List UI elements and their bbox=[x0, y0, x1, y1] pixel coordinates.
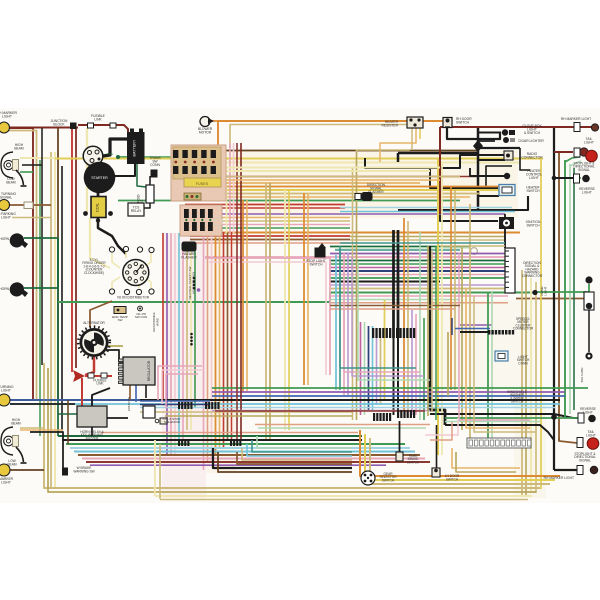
svg-text:LIGHT: LIGHT bbox=[586, 433, 596, 437]
svg-text:BEAM: BEAM bbox=[11, 421, 21, 425]
svg-text:BATTERY: BATTERY bbox=[133, 139, 137, 156]
svg-text:SWITCH: SWITCH bbox=[407, 460, 420, 464]
svg-text:LIGHT: LIGHT bbox=[529, 176, 539, 180]
svg-text:RELAY: RELAY bbox=[131, 209, 142, 213]
svg-text:CONN: CONN bbox=[150, 163, 160, 167]
svg-text:LIGHT: LIGHT bbox=[1, 480, 11, 484]
svg-text:& SWITCH: & SWITCH bbox=[524, 131, 541, 135]
svg-text:SOLENOID: SOLENOID bbox=[164, 420, 181, 424]
svg-text:CONNECTOR: CONNECTOR bbox=[513, 327, 534, 331]
svg-text:CLOCKWISE): CLOCKWISE) bbox=[84, 271, 104, 275]
svg-text:MOTOR: MOTOR bbox=[199, 130, 212, 134]
svg-text:SWITCH: SWITCH bbox=[309, 262, 323, 266]
svg-text:RH MARKER LIGHT: RH MARKER LIGHT bbox=[561, 117, 591, 121]
svg-text:SIGNAL: SIGNAL bbox=[0, 195, 12, 199]
svg-text:LIGHT: LIGHT bbox=[582, 190, 592, 194]
svg-text:HORN: HORN bbox=[0, 287, 10, 291]
svg-text:LIGHT: LIGHT bbox=[2, 115, 12, 119]
svg-text:ALTERNATOR: ALTERNATOR bbox=[83, 321, 105, 325]
svg-text:FLASHER: FLASHER bbox=[181, 255, 197, 259]
svg-text:LINK: LINK bbox=[96, 382, 104, 386]
svg-text:HORN: HORN bbox=[0, 237, 10, 241]
svg-text:BEAM: BEAM bbox=[14, 147, 24, 151]
svg-text:SWITCH: SWITCH bbox=[382, 478, 395, 482]
svg-text:(AUTO TRANS): (AUTO TRANS) bbox=[192, 272, 196, 294]
svg-text:CONN: CONN bbox=[518, 361, 528, 365]
svg-text:SWITCH: SWITCH bbox=[446, 477, 459, 481]
svg-text:SW: SW bbox=[118, 318, 123, 322]
svg-text:BUZZER: BUZZER bbox=[86, 436, 99, 440]
svg-text:RH MARKER LIGHT: RH MARKER LIGHT bbox=[544, 476, 574, 480]
svg-text:SWITCH: SWITCH bbox=[456, 120, 470, 124]
svg-text:SW CON: SW CON bbox=[135, 315, 147, 319]
svg-text:BLOCK: BLOCK bbox=[53, 122, 65, 126]
svg-text:V8 ON DISTRIBUTOR: V8 ON DISTRIBUTOR bbox=[117, 296, 150, 300]
svg-text:SWITCH: SWITCH bbox=[526, 189, 540, 193]
svg-text:SIGNAL: SIGNAL bbox=[579, 458, 591, 462]
svg-text:GRN: GRN bbox=[107, 152, 113, 156]
svg-text:LIGHT: LIGHT bbox=[583, 410, 593, 414]
svg-text:WARNING SW: WARNING SW bbox=[73, 469, 94, 473]
svg-text:CONNECTOR: CONNECTOR bbox=[521, 155, 543, 159]
svg-text:REGULATOR: REGULATOR bbox=[147, 360, 151, 381]
svg-text:LIGHT: LIGHT bbox=[584, 140, 594, 144]
svg-text:COIL: COIL bbox=[95, 202, 100, 212]
svg-text:STARTER: STARTER bbox=[91, 176, 108, 180]
svg-text:CONNECTOR: CONNECTOR bbox=[522, 274, 543, 278]
svg-text:LINK: LINK bbox=[94, 117, 102, 121]
svg-text:FUSES: FUSES bbox=[196, 182, 209, 186]
svg-text:CIGAR LIGHTER: CIGAR LIGHTER bbox=[518, 139, 544, 143]
svg-text:BEAM: BEAM bbox=[6, 181, 16, 185]
svg-text:SWITCH: SWITCH bbox=[511, 400, 524, 404]
svg-text:SIGNAL: SIGNAL bbox=[578, 168, 590, 172]
svg-text:LIGHT: LIGHT bbox=[1, 388, 11, 392]
svg-text:FLASHER: FLASHER bbox=[368, 190, 384, 194]
svg-text:LIGHT: LIGHT bbox=[544, 286, 548, 295]
svg-text:TAIL GATE: TAIL GATE bbox=[580, 367, 584, 382]
svg-text:CONN ON: CONN ON bbox=[127, 397, 131, 411]
svg-text:WIRE: WIRE bbox=[156, 318, 160, 326]
svg-text:SWITCH: SWITCH bbox=[526, 223, 540, 227]
svg-text:LIGHT: LIGHT bbox=[1, 215, 11, 219]
svg-text:RESISTER: RESISTER bbox=[382, 123, 399, 127]
